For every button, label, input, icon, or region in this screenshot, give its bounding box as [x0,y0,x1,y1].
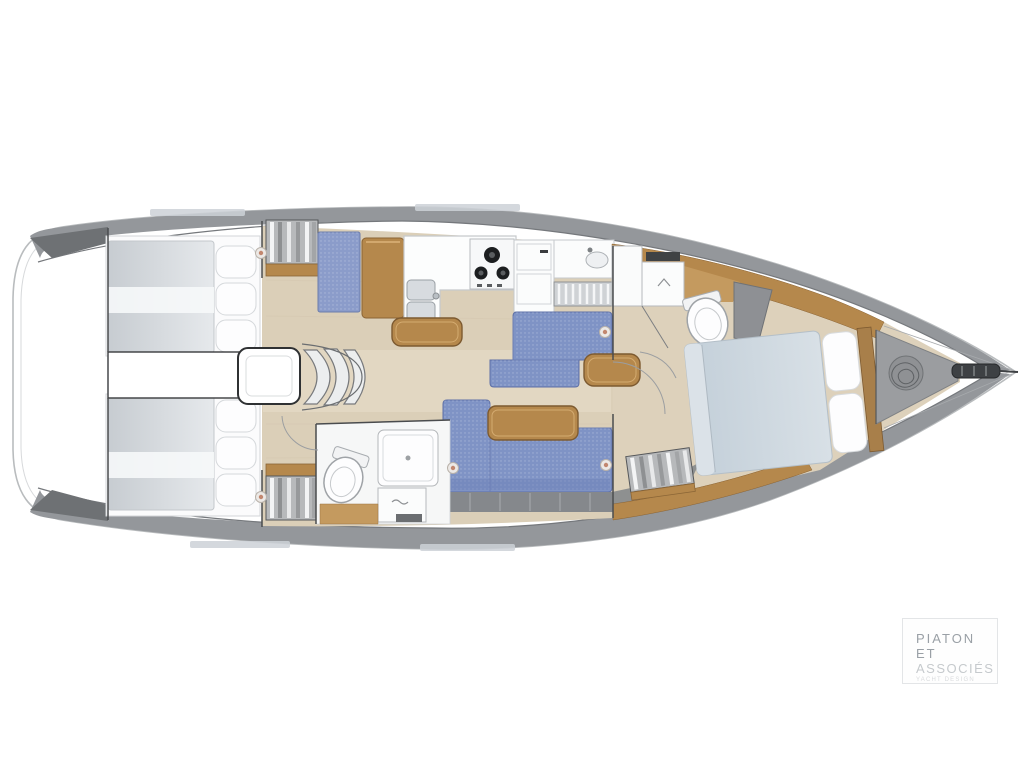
bed-runner [108,452,214,478]
bed-runner [108,287,214,313]
logo-tagline: YACHT DESIGN [916,676,997,684]
anchor-rope-icon [889,356,923,390]
spot-marker-icon [256,492,267,503]
wardrobe-port [266,464,318,520]
chart-table [362,238,404,318]
spot-marker-icon [256,248,267,259]
aft-head-floor [320,504,378,524]
pillows [216,246,256,352]
sofa-armrest-table [584,354,640,386]
small-sink [586,252,608,268]
galley-wood-bar [392,318,462,346]
spot-marker-icon [448,463,459,474]
logo-line-2: ET [916,646,997,661]
yacht-floor-plan: PIATON ET ASSOCIÉS YACHT DESIGN [0,0,1024,768]
stern-corridor [108,352,240,398]
spot-marker-icon [601,460,612,471]
pillows [216,400,256,506]
galley-stove [470,239,514,289]
nav-counter [554,240,614,278]
wardrobe-starboard [266,220,318,276]
spot-marker-icon [600,327,611,338]
galley-fridge [514,240,554,312]
forward-head-cabinet [612,246,642,306]
salon-table [488,406,578,440]
designer-logo: PIATON ET ASSOCIÉS YACHT DESIGN [902,618,998,684]
boat-plan-drawing [0,0,1024,768]
forward-wardrobe [626,448,696,500]
aft-head-shower [378,430,438,486]
faucet-icon [433,293,439,299]
aft-head-sink [378,488,426,522]
forward-head-sink [642,252,684,306]
logo-line-1: PIATON [916,631,997,646]
logo-line-3: ASSOCIÉS [916,661,997,676]
galley-louver-rack [554,282,612,306]
